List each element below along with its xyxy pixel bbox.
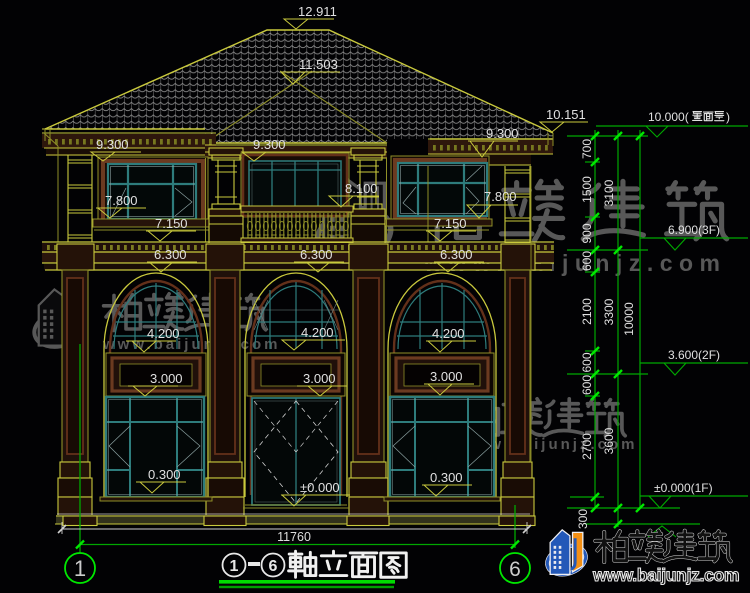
svg-text:900: 900	[580, 223, 594, 243]
svg-text:10000: 10000	[622, 302, 636, 336]
svg-text:4.200: 4.200	[301, 325, 334, 340]
svg-text:11760: 11760	[277, 530, 311, 544]
svg-text:300: 300	[576, 509, 590, 529]
svg-text:6: 6	[269, 558, 278, 575]
svg-text:7.800: 7.800	[484, 189, 517, 204]
svg-text:0.300: 0.300	[430, 470, 463, 485]
svg-text:9.300: 9.300	[96, 137, 129, 152]
svg-text:11.503: 11.503	[299, 57, 338, 72]
svg-text:8.100: 8.100	[345, 181, 378, 196]
svg-text:3100: 3100	[602, 179, 616, 206]
svg-text:10.000(: 10.000(	[648, 110, 689, 124]
svg-text:600: 600	[580, 251, 594, 271]
svg-text:9.300: 9.300	[253, 137, 286, 152]
svg-text:7.150: 7.150	[155, 216, 188, 231]
svg-text:7.150: 7.150	[434, 216, 467, 231]
svg-text:3300: 3300	[602, 298, 616, 325]
svg-text:6.900(3F): 6.900(3F)	[668, 223, 720, 237]
svg-text:±0.000: ±0.000	[300, 480, 340, 495]
svg-text:9.300: 9.300	[486, 126, 519, 141]
svg-text:6: 6	[509, 558, 521, 581]
svg-text:1: 1	[230, 558, 239, 575]
svg-text:3.600(2F): 3.600(2F)	[668, 348, 720, 362]
svg-text:6.300: 6.300	[440, 247, 473, 262]
svg-text:6.300: 6.300	[154, 247, 187, 262]
svg-text:700: 700	[580, 139, 594, 159]
svg-text:±0.000(1F): ±0.000(1F)	[654, 481, 713, 495]
svg-text:www.baijunjz.com: www.baijunjz.com	[102, 336, 280, 353]
svg-text:4.200: 4.200	[432, 326, 465, 341]
svg-text:1: 1	[74, 556, 86, 581]
svg-text:3.000: 3.000	[303, 371, 336, 386]
svg-text:2700: 2700	[580, 433, 594, 460]
svg-text:600: 600	[580, 375, 594, 395]
svg-text:0.300: 0.300	[148, 467, 181, 482]
svg-text:4.200: 4.200	[147, 326, 180, 341]
svg-text:600: 600	[580, 352, 594, 372]
svg-text:): )	[726, 110, 730, 124]
svg-text:2100: 2100	[580, 298, 594, 325]
svg-text:3.000: 3.000	[430, 369, 463, 384]
svg-text:10.151: 10.151	[546, 107, 586, 122]
svg-text:www.baijunjz.com: www.baijunjz.com	[592, 565, 739, 585]
svg-text:3600: 3600	[602, 427, 616, 454]
svg-text:6.300: 6.300	[300, 247, 333, 262]
svg-text:1500: 1500	[580, 176, 594, 203]
svg-text:12.911: 12.911	[298, 4, 337, 19]
svg-text:3.000: 3.000	[150, 371, 183, 386]
svg-text:7.800: 7.800	[105, 193, 138, 208]
